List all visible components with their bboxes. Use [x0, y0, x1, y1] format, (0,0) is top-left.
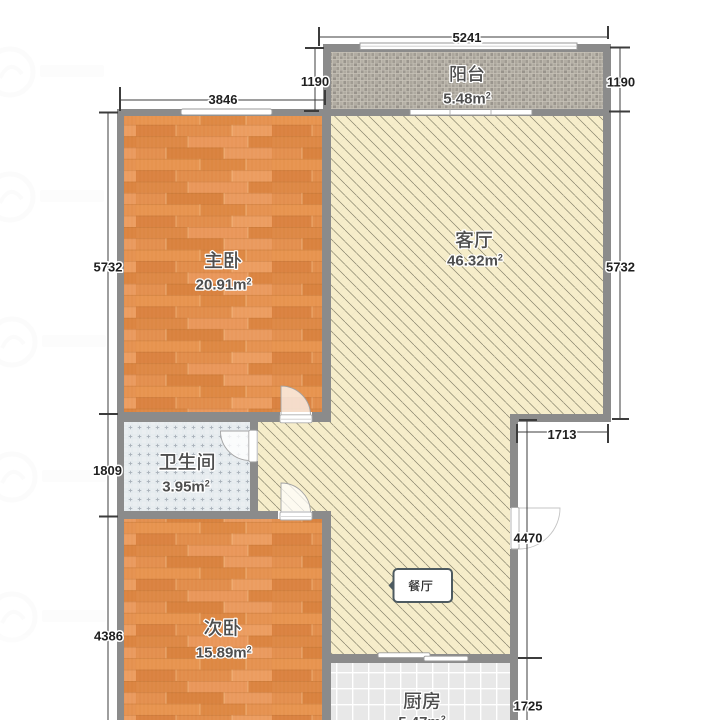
- svg-text:5.47m2: 5.47m2: [398, 714, 446, 720]
- svg-text:1190: 1190: [607, 74, 635, 89]
- svg-text:1725: 1725: [514, 699, 543, 714]
- svg-text:4386: 4386: [94, 629, 123, 644]
- svg-text:3.95m2: 3.95m2: [162, 478, 210, 495]
- svg-text:5.48m2: 5.48m2: [443, 90, 491, 107]
- svg-text:1190: 1190: [301, 74, 329, 89]
- svg-text:46.32m2: 46.32m2: [447, 252, 503, 269]
- svg-text:5732: 5732: [606, 260, 635, 275]
- svg-text:5732: 5732: [94, 260, 123, 275]
- svg-text:20.91m2: 20.91m2: [196, 276, 252, 293]
- svg-text:1809: 1809: [93, 463, 122, 478]
- svg-text:1713: 1713: [548, 427, 577, 442]
- svg-text:5241: 5241: [453, 30, 482, 45]
- svg-text:4470: 4470: [514, 531, 543, 546]
- svg-text:3846: 3846: [209, 92, 238, 107]
- svg-text:15.89m2: 15.89m2: [196, 644, 252, 661]
